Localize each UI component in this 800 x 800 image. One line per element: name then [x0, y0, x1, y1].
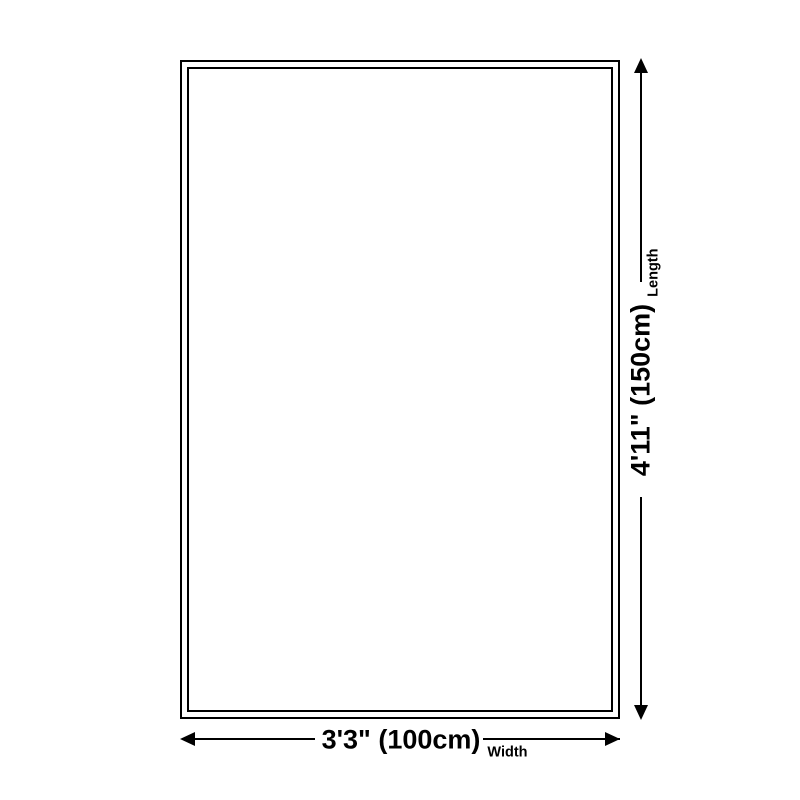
length-axis-name: Length [645, 249, 662, 297]
product-outline-inner [187, 67, 613, 712]
size-diagram: 4'11" (150cm) Length 3'3" (100cm) Width [0, 0, 800, 800]
width-dimension-label: 3'3" (100cm) Width [322, 724, 481, 755]
arrow-right-icon [605, 732, 620, 746]
product-outline-outer [180, 60, 620, 719]
width-value: 3'3" (100cm) [322, 724, 481, 754]
length-value: 4'11" (150cm) [625, 304, 655, 476]
arrow-up-icon [634, 58, 648, 73]
length-dimension-label: 4'11" (150cm) Length [625, 304, 656, 476]
arrow-down-icon [634, 705, 648, 720]
width-dimension-line-left [182, 738, 315, 740]
width-dimension-line-right [483, 738, 620, 740]
arrow-left-icon [180, 732, 195, 746]
length-dimension-line-bottom [640, 497, 642, 718]
width-axis-name: Width [487, 744, 527, 761]
length-dimension-line-top [640, 62, 642, 282]
